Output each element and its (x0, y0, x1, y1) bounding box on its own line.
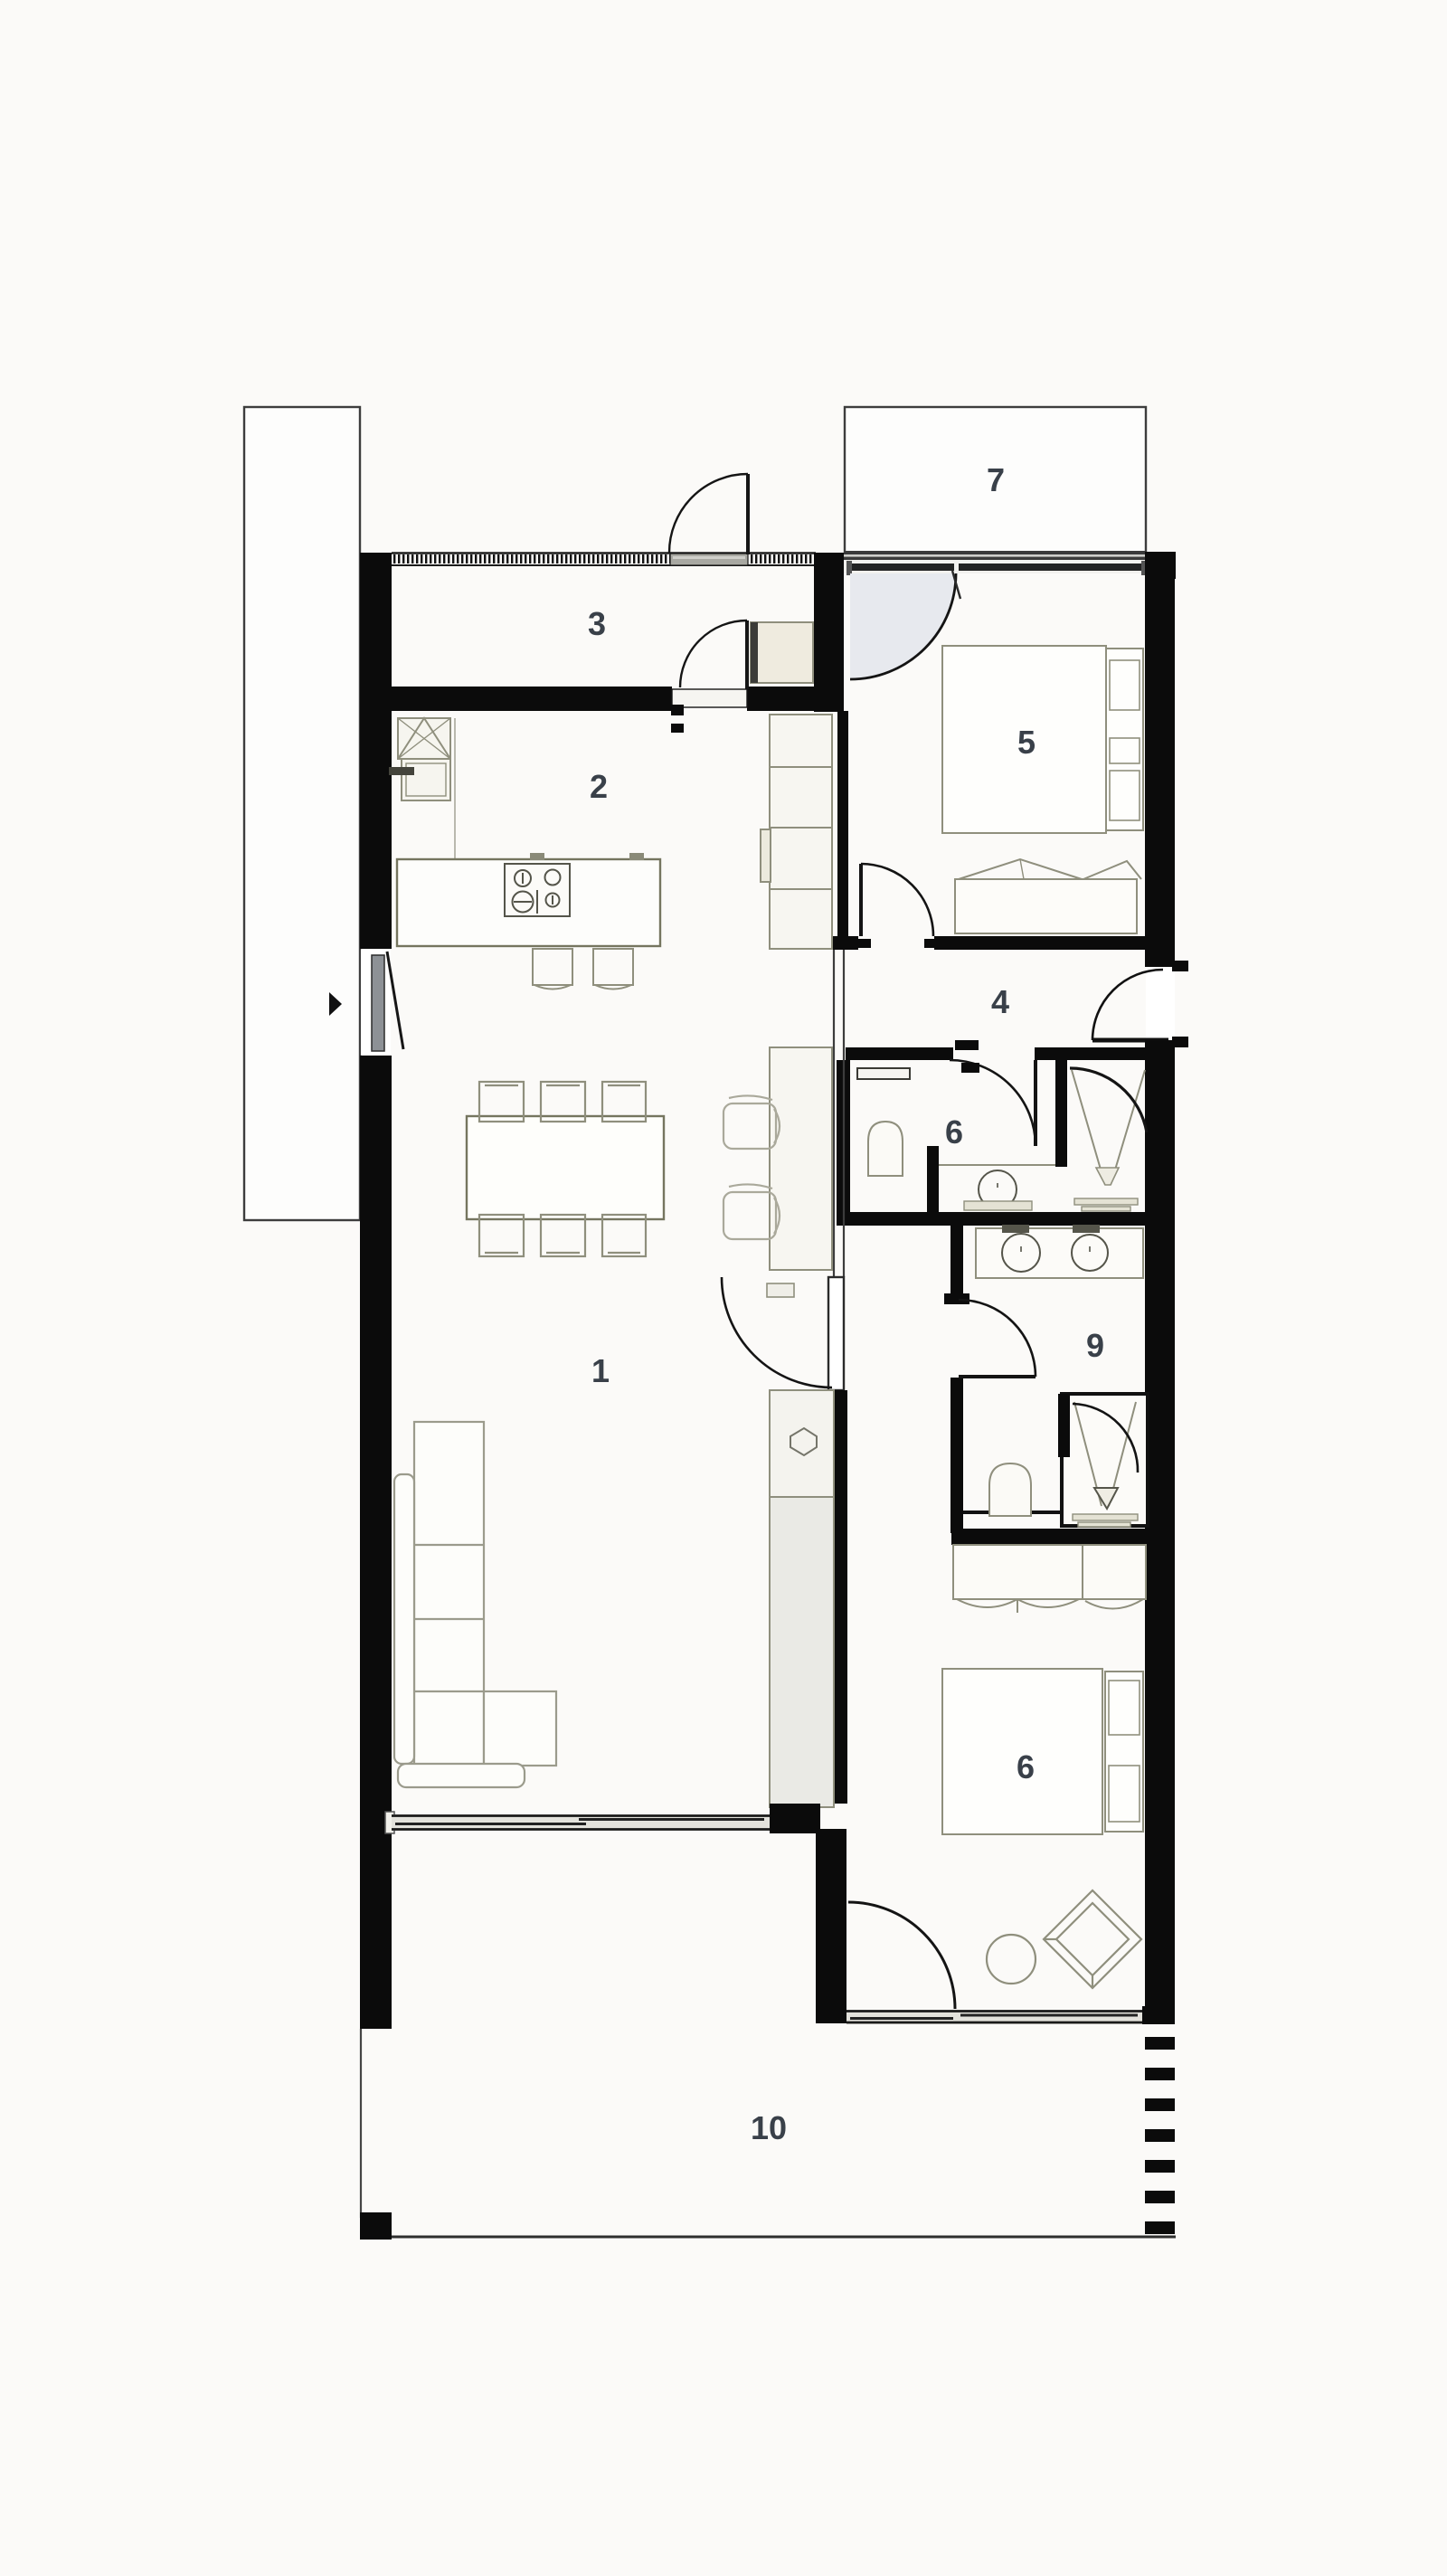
svg-text:6: 6 (945, 1113, 963, 1151)
svg-text:3: 3 (588, 605, 606, 642)
svg-text:9: 9 (1086, 1327, 1104, 1364)
svg-text:4: 4 (991, 983, 1009, 1020)
svg-text:10: 10 (751, 2109, 787, 2146)
svg-text:5: 5 (1017, 724, 1036, 761)
svg-text:7: 7 (987, 461, 1005, 498)
svg-text:6: 6 (1017, 1748, 1035, 1785)
svg-text:1: 1 (591, 1352, 610, 1389)
svg-text:2: 2 (590, 768, 608, 805)
